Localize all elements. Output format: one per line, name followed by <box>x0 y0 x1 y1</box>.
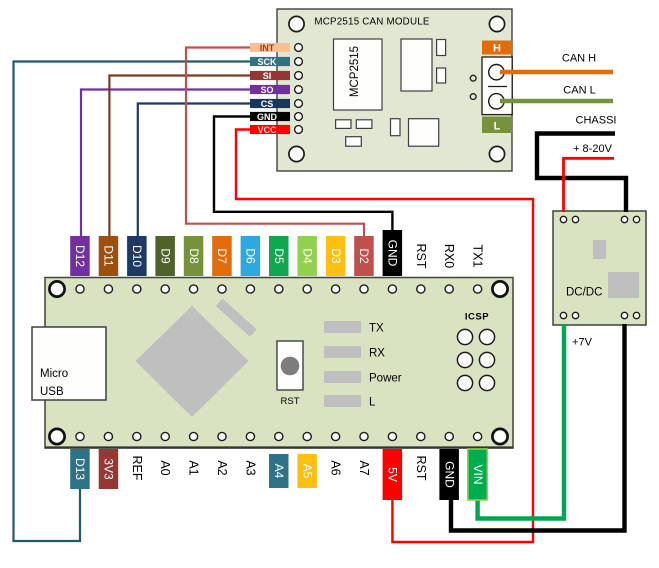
svg-text:D9: D9 <box>158 248 172 264</box>
svg-text:A5: A5 <box>300 464 314 479</box>
svg-text:D7: D7 <box>215 248 229 264</box>
svg-text:SI: SI <box>263 71 272 81</box>
svg-text:+7V: +7V <box>572 337 593 349</box>
svg-text:CAN L: CAN L <box>563 85 595 97</box>
svg-text:GND: GND <box>386 240 400 267</box>
svg-text:A1: A1 <box>187 460 201 475</box>
svg-text:RST: RST <box>281 396 300 407</box>
svg-text:CHASSI: CHASSI <box>576 115 617 127</box>
svg-text:D5: D5 <box>272 248 286 264</box>
svg-text:D6: D6 <box>244 248 258 264</box>
svg-text:D4: D4 <box>300 248 314 264</box>
svg-text:USB: USB <box>40 386 64 398</box>
svg-text:3V3: 3V3 <box>102 458 116 480</box>
svg-text:GND: GND <box>442 461 456 488</box>
svg-text:CS: CS <box>261 99 274 109</box>
svg-text:INT: INT <box>260 43 275 53</box>
svg-text:RX: RX <box>369 348 385 360</box>
svg-text:+ 8-20V: + 8-20V <box>573 143 612 155</box>
svg-text:D10: D10 <box>130 245 144 267</box>
svg-text:D8: D8 <box>187 248 201 264</box>
svg-text:A0: A0 <box>158 460 172 475</box>
svg-text:A7: A7 <box>357 460 371 475</box>
svg-text:ICSP: ICSP <box>465 312 489 323</box>
svg-text:RST: RST <box>414 456 428 481</box>
svg-text:A2: A2 <box>215 460 229 475</box>
svg-text:5V: 5V <box>386 467 400 482</box>
svg-text:D13: D13 <box>73 458 87 480</box>
svg-text:MCP2515 CAN MODULE: MCP2515 CAN MODULE <box>314 17 429 28</box>
svg-text:A3: A3 <box>243 460 257 475</box>
svg-text:TX: TX <box>369 323 384 335</box>
svg-text:D3: D3 <box>329 248 343 264</box>
svg-text:TX1: TX1 <box>471 245 485 268</box>
svg-text:CAN H: CAN H <box>562 53 596 65</box>
svg-text:L: L <box>369 397 376 409</box>
svg-text:SO: SO <box>260 85 273 95</box>
svg-text:RX0: RX0 <box>442 244 456 268</box>
svg-text:RST: RST <box>414 244 428 269</box>
svg-text:Micro: Micro <box>40 368 68 380</box>
svg-text:Power: Power <box>369 373 402 385</box>
svg-text:SCK: SCK <box>257 57 277 67</box>
svg-text:MCP2515: MCP2515 <box>349 46 361 97</box>
svg-text:GND: GND <box>257 112 278 122</box>
svg-text:DC/DC: DC/DC <box>566 287 602 299</box>
svg-text:A4: A4 <box>272 464 286 479</box>
svg-text:VCC: VCC <box>257 125 277 135</box>
svg-text:A6: A6 <box>329 460 343 475</box>
svg-text:D11: D11 <box>102 245 116 266</box>
svg-text:H: H <box>493 43 501 55</box>
svg-text:D2: D2 <box>357 248 371 264</box>
svg-text:VIN: VIN <box>471 464 485 484</box>
svg-text:L: L <box>494 121 501 133</box>
svg-text:REF: REF <box>130 456 144 481</box>
svg-text:D12: D12 <box>73 245 87 267</box>
